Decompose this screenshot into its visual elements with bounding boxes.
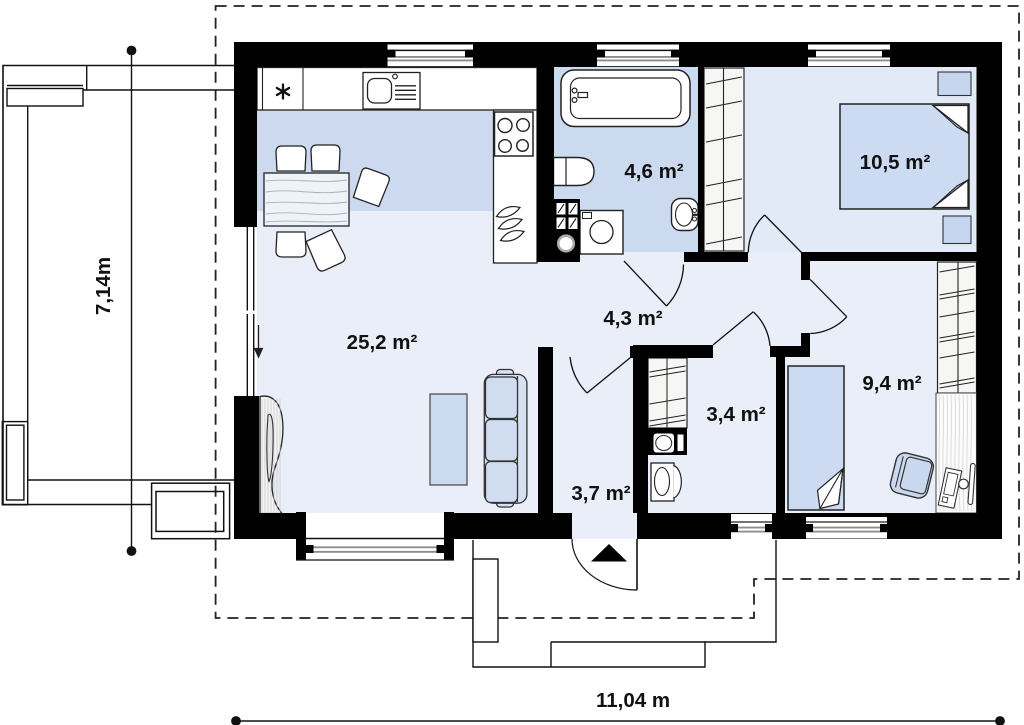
svg-text:4,6 m²: 4,6 m² [624, 160, 683, 183]
svg-text:3,7 m²: 3,7 m² [571, 482, 630, 505]
svg-text:4,3 m²: 4,3 m² [603, 307, 662, 330]
svg-text:25,2 m²: 25,2 m² [347, 331, 418, 354]
svg-text:11,04 m: 11,04 m [596, 689, 670, 712]
svg-text:9,4 m²: 9,4 m² [862, 372, 921, 395]
svg-text:10,5 m²: 10,5 m² [860, 151, 931, 174]
svg-text:3,4 m²: 3,4 m² [706, 403, 765, 426]
svg-text:7,14m: 7,14m [92, 257, 115, 315]
